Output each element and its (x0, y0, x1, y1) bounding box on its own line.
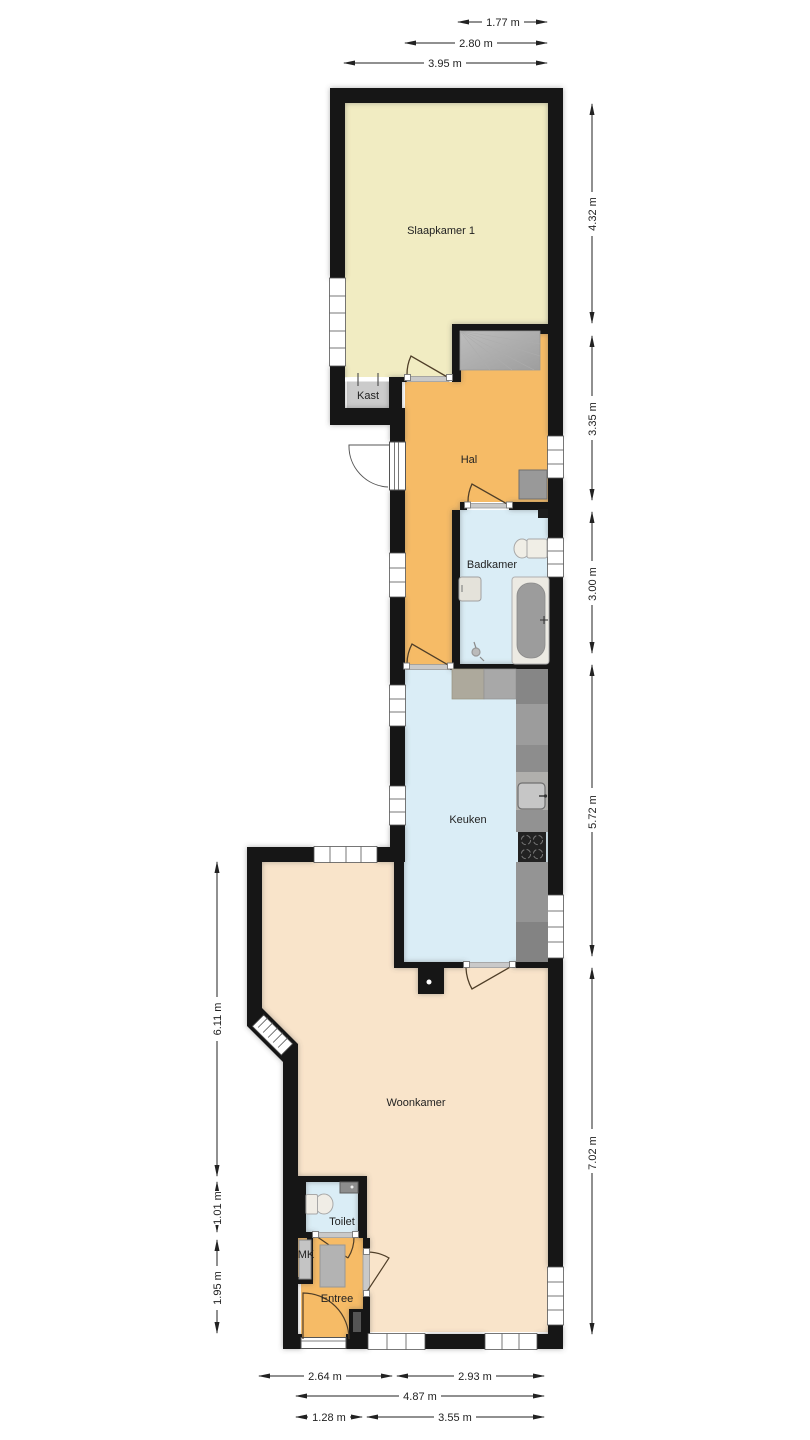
svg-text:Badkamer: Badkamer (467, 559, 517, 571)
svg-text:2.80 m: 2.80 m (459, 38, 493, 50)
svg-text:3.35 m: 3.35 m (587, 402, 599, 436)
svg-text:3.55 m: 3.55 m (438, 1412, 472, 1424)
svg-text:6.11 m: 6.11 m (212, 1003, 224, 1036)
svg-text:3.00 m: 3.00 m (587, 567, 599, 601)
svg-text:1.95 m: 1.95 m (212, 1271, 224, 1305)
svg-text:Toilet: Toilet (329, 1216, 355, 1228)
svg-text:1.01 m: 1.01 m (212, 1191, 224, 1225)
svg-text:Kast: Kast (357, 390, 379, 402)
svg-text:Slaapkamer 1: Slaapkamer 1 (407, 225, 475, 237)
svg-text:Hal: Hal (461, 454, 478, 466)
svg-text:4.32 m: 4.32 m (587, 197, 599, 231)
svg-text:3.95 m: 3.95 m (428, 58, 462, 70)
svg-text:2.64 m: 2.64 m (308, 1371, 342, 1383)
svg-text:7.02 m: 7.02 m (587, 1136, 599, 1170)
svg-text:MK: MK (298, 1249, 315, 1261)
svg-text:1.28 m: 1.28 m (312, 1412, 346, 1424)
svg-text:4.87 m: 4.87 m (403, 1391, 437, 1403)
svg-text:Keuken: Keuken (449, 814, 486, 826)
svg-text:Entree: Entree (321, 1293, 353, 1305)
svg-text:1.77 m: 1.77 m (486, 17, 520, 29)
svg-text:Woonkamer: Woonkamer (386, 1097, 445, 1109)
svg-text:5.72 m: 5.72 m (587, 795, 599, 829)
svg-text:2.93 m: 2.93 m (458, 1371, 492, 1383)
